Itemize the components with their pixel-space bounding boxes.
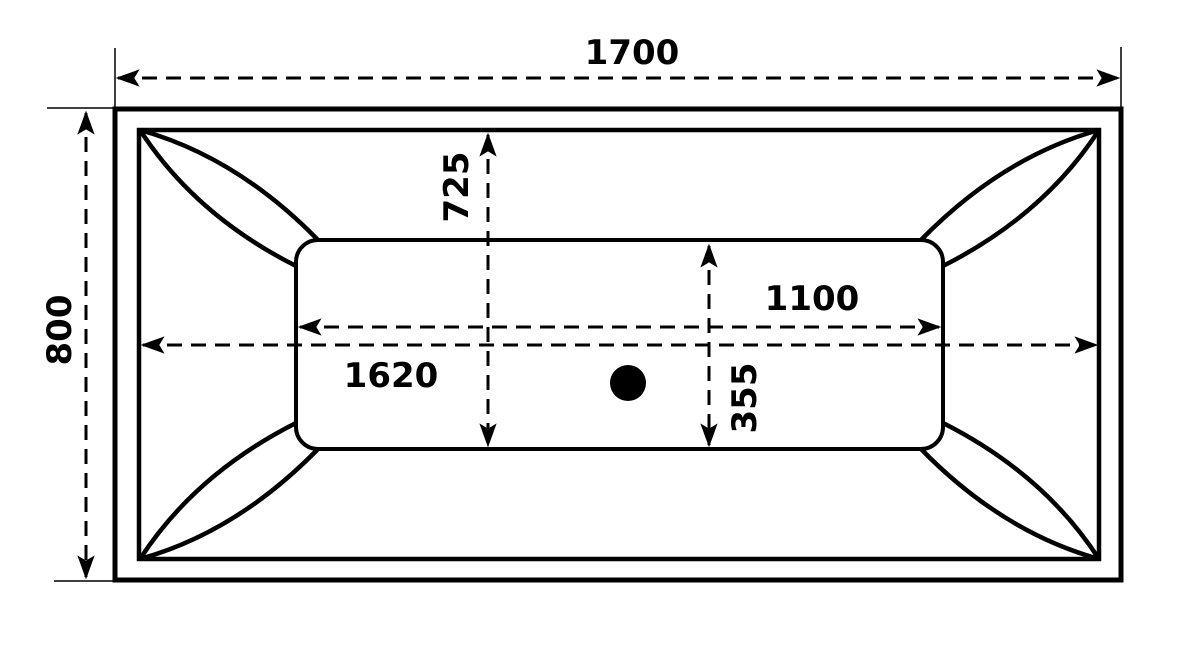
dim-label-overall-width-group: 800 bbox=[40, 295, 80, 366]
dim-label-basin-width: 355 bbox=[725, 363, 765, 434]
bathtub-top-view-drawing: 1700 800 725 1620 1100 355 bbox=[0, 0, 1200, 662]
dim-label-basin-length: 1100 bbox=[765, 279, 860, 319]
dim-label-rim-inner-length: 1620 bbox=[344, 356, 439, 396]
dim-label-rim-inner-width: 725 bbox=[437, 152, 477, 223]
inner-rim-outline bbox=[139, 130, 1099, 559]
dim-label-overall-length: 1700 bbox=[585, 33, 680, 73]
dim-label-overall-width: 800 bbox=[40, 295, 80, 366]
dim-label-rim-inner-width-group: 725 bbox=[437, 152, 477, 223]
drain-icon bbox=[610, 365, 646, 401]
technical-drawing-canvas: 1700 800 725 1620 1100 355 bbox=[0, 0, 1200, 662]
dim-label-basin-width-group: 355 bbox=[725, 363, 765, 434]
